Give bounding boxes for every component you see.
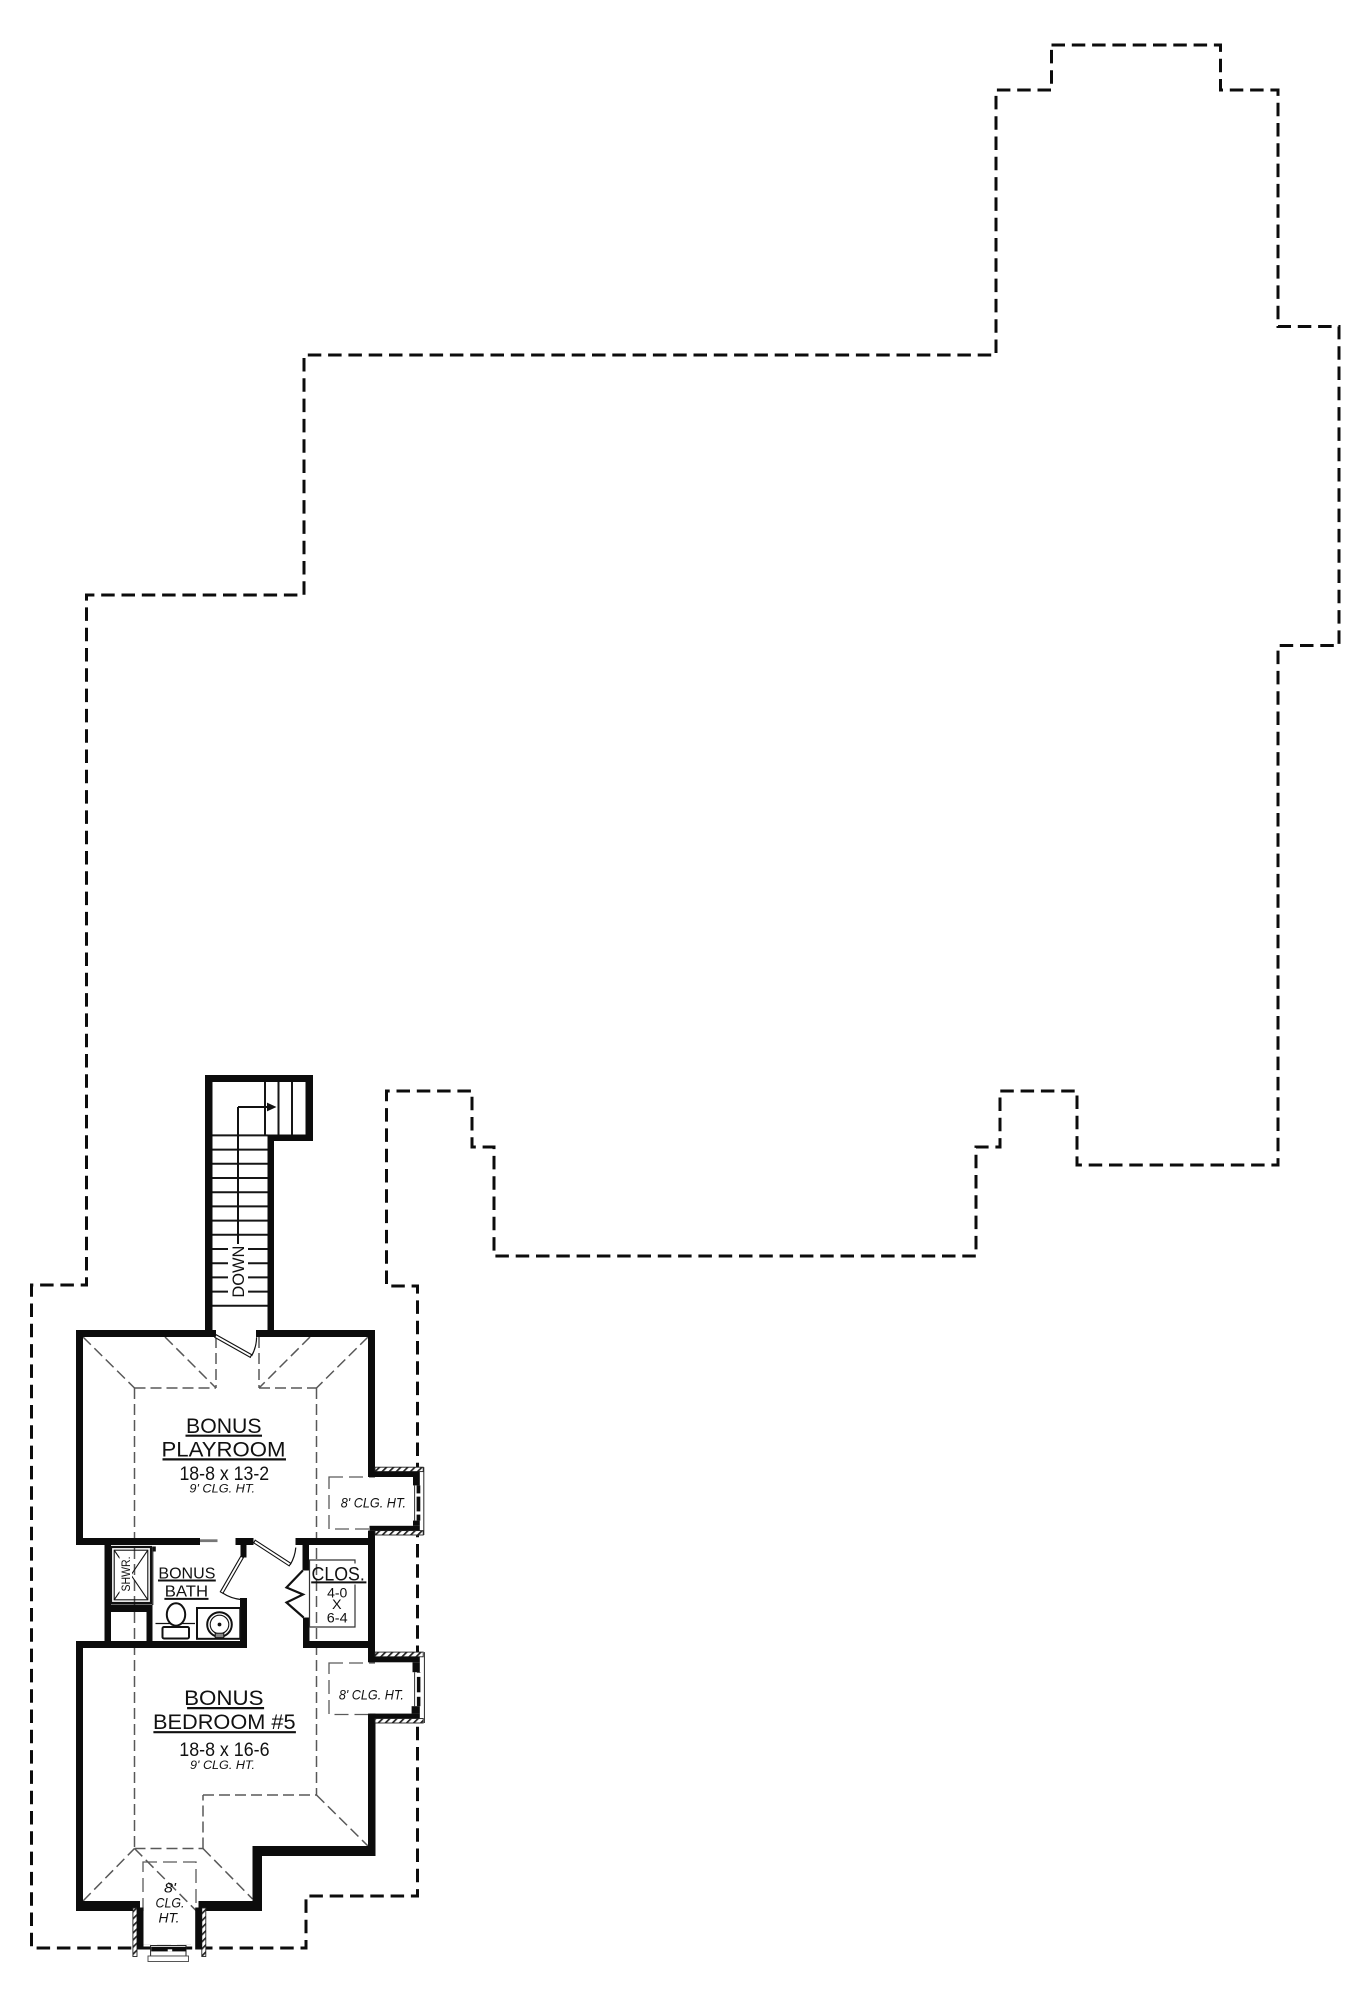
svg-text:18-8 x 13-2: 18-8 x 13-2: [179, 1464, 269, 1485]
svg-text:8' CLG. HT.: 8' CLG. HT.: [339, 1686, 404, 1702]
svg-text:8' CLG. HT.: 8' CLG. HT.: [341, 1495, 406, 1511]
svg-text:8': 8': [164, 1880, 178, 1896]
svg-text:CLG.: CLG.: [156, 1895, 185, 1911]
svg-text:BONUS: BONUS: [186, 1415, 262, 1438]
svg-text:BEDROOM #5: BEDROOM #5: [153, 1711, 296, 1734]
svg-text:BONUS: BONUS: [184, 1687, 263, 1710]
svg-text:SHWR.: SHWR.: [121, 1557, 133, 1592]
svg-text:18-8 x 16-6: 18-8 x 16-6: [179, 1740, 269, 1761]
svg-text:9' CLG. HT.: 9' CLG. HT.: [190, 1760, 255, 1772]
svg-text:6-4: 6-4: [327, 1610, 348, 1625]
svg-text:HT.: HT.: [159, 1910, 180, 1926]
svg-text:9' CLG. HT.: 9' CLG. HT.: [189, 1484, 255, 1496]
svg-text:PLAYROOM: PLAYROOM: [162, 1438, 286, 1461]
svg-text:DOWN: DOWN: [230, 1246, 248, 1298]
